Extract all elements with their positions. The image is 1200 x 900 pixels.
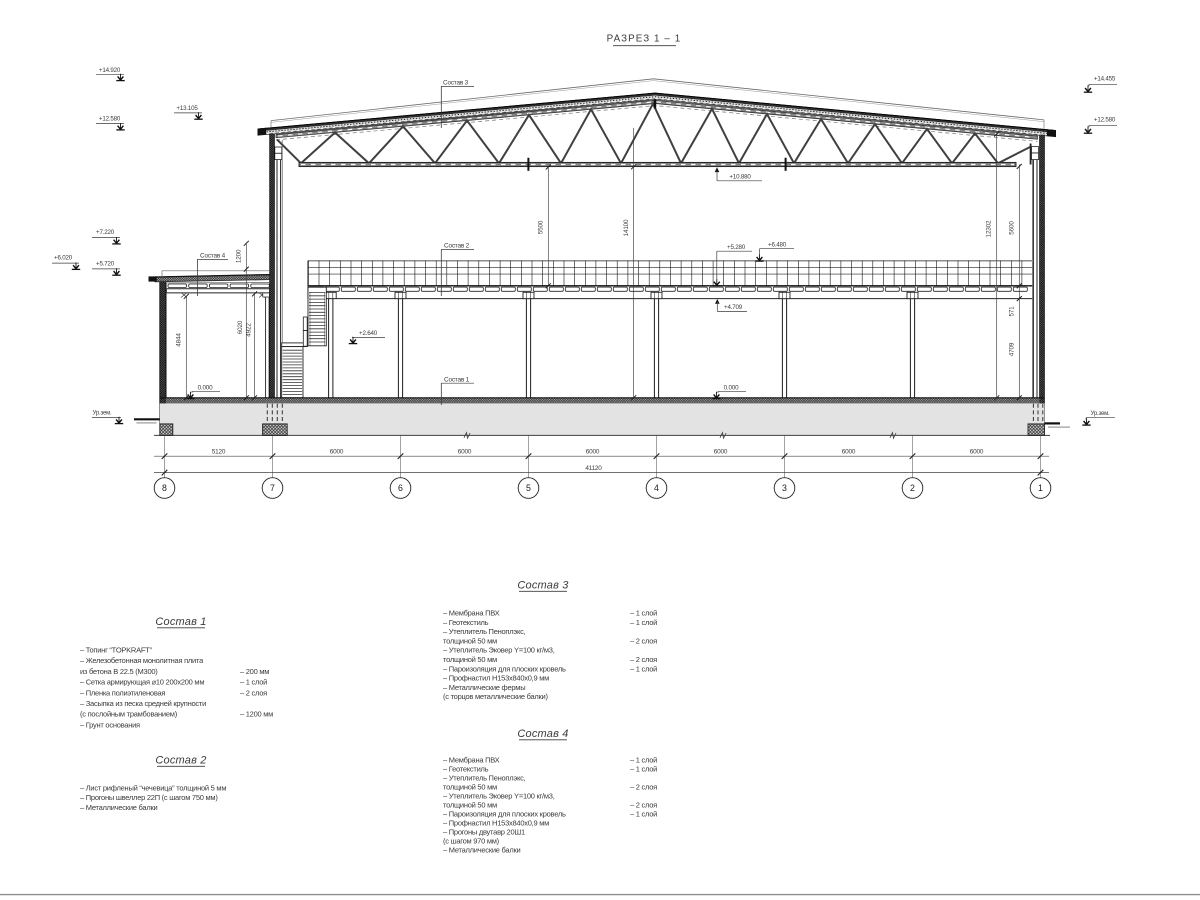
svg-text:1200: 1200 bbox=[235, 249, 242, 263]
svg-text:– Металлические балки: – Металлические балки bbox=[80, 803, 157, 812]
svg-text:– 1 слой: – 1 слой bbox=[240, 678, 267, 687]
svg-text:– 1 слой: – 1 слой bbox=[630, 764, 657, 773]
svg-text:6000: 6000 bbox=[330, 448, 344, 455]
svg-text:+13.105: +13.105 bbox=[176, 105, 198, 112]
svg-text:РАЗРЕЗ 1 – 1: РАЗРЕЗ 1 – 1 bbox=[607, 34, 682, 45]
svg-text:4922: 4922 bbox=[246, 323, 253, 337]
svg-text:+5.280: +5.280 bbox=[727, 244, 746, 251]
svg-text:6020: 6020 bbox=[237, 320, 244, 334]
svg-text:+4.709: +4.709 bbox=[724, 304, 743, 311]
svg-text:Состав 4: Состав 4 bbox=[200, 253, 226, 260]
svg-text:– Грунт основания: – Грунт основания bbox=[80, 720, 140, 729]
svg-text:+6.020: +6.020 bbox=[54, 255, 73, 262]
svg-text:2: 2 bbox=[910, 483, 915, 493]
svg-text:6000: 6000 bbox=[458, 448, 472, 455]
svg-text:8: 8 bbox=[162, 483, 167, 493]
svg-text:из бетона В 22.5 (М300): из бетона В 22.5 (М300) bbox=[80, 667, 158, 676]
svg-text:6000: 6000 bbox=[586, 448, 600, 455]
svg-text:(с шагом 970 мм): (с шагом 970 мм) bbox=[443, 836, 500, 845]
svg-text:+7.220: +7.220 bbox=[96, 229, 115, 236]
svg-text:6000: 6000 bbox=[842, 448, 856, 455]
svg-text:– Профнастил Н153х840х0,9 мм: – Профнастил Н153х840х0,9 мм bbox=[443, 818, 549, 827]
svg-text:12302: 12302 bbox=[986, 220, 993, 237]
svg-text:Состав 4: Состав 4 bbox=[517, 728, 568, 740]
svg-text:5500: 5500 bbox=[538, 220, 545, 234]
svg-text:– Пленка полиэтиленовая: – Пленка полиэтиленовая bbox=[80, 688, 165, 697]
svg-text:Состав 1: Состав 1 bbox=[155, 616, 206, 628]
svg-text:4844: 4844 bbox=[175, 333, 182, 347]
svg-text:6000: 6000 bbox=[714, 448, 728, 455]
svg-text:– Мембрана ПВХ: – Мембрана ПВХ bbox=[443, 609, 500, 618]
svg-text:– 1 слой: – 1 слой bbox=[630, 609, 657, 618]
svg-text:5: 5 bbox=[526, 483, 531, 493]
svg-text:– Прогоны двутавр 20Ш1: – Прогоны двутавр 20Ш1 bbox=[443, 827, 525, 836]
svg-text:– 1200 мм: – 1200 мм bbox=[240, 710, 273, 719]
svg-text:Состав 2: Состав 2 bbox=[444, 243, 470, 250]
svg-text:– Пароизоляция для плоских кро: – Пароизоляция для плоских кровель bbox=[443, 809, 566, 818]
svg-text:– Топинг “TOPKRAFT”: – Топинг “TOPKRAFT” bbox=[80, 646, 152, 655]
svg-text:– Утеплитель Эковер Y=100 кг/м: – Утеплитель Эковер Y=100 кг/м3, bbox=[443, 791, 555, 800]
svg-text:6: 6 bbox=[398, 483, 403, 493]
svg-text:Состав 1: Состав 1 bbox=[444, 376, 470, 383]
svg-text:Состав 3: Состав 3 bbox=[443, 80, 469, 87]
svg-text:+2.640: +2.640 bbox=[359, 330, 378, 337]
svg-text:– Утеплитель Пеноплэкс,: – Утеплитель Пеноплэкс, bbox=[443, 627, 526, 636]
svg-text:– 2 слоя: – 2 слоя bbox=[630, 800, 657, 809]
svg-text:Ур.зем.: Ур.зем. bbox=[93, 411, 112, 417]
svg-text:– Утеплитель Эковер Y=100 кг/м: – Утеплитель Эковер Y=100 кг/м3, bbox=[443, 646, 555, 655]
svg-text:– 2 слоя: – 2 слоя bbox=[630, 636, 657, 645]
svg-text:7: 7 bbox=[270, 483, 275, 493]
svg-text:– Железобетонная монолитная п: – Железобетонная монолитная плита bbox=[80, 656, 204, 665]
svg-text:– Профнастил Н153х840х0,9 мм: – Профнастил Н153х840х0,9 мм bbox=[443, 674, 549, 683]
svg-text:– Пароизоляция для плоских кро: – Пароизоляция для плоских кровель bbox=[443, 664, 566, 673]
svg-text:+5.720: +5.720 bbox=[96, 260, 115, 267]
svg-text:(с послойным трамбованием): (с послойным трамбованием) bbox=[80, 710, 178, 719]
svg-text:0.000: 0.000 bbox=[724, 384, 739, 391]
svg-text:– Металлические фермы: – Металлические фермы bbox=[443, 683, 525, 692]
svg-text:– Засыпка из песка средней кру: – Засыпка из песка средней крупности bbox=[80, 699, 206, 708]
svg-text:1: 1 bbox=[1038, 483, 1043, 493]
svg-text:14100: 14100 bbox=[623, 219, 630, 236]
svg-text:– 2 слоя: – 2 слоя bbox=[630, 655, 657, 664]
svg-text:– Металлические балки: – Металлические балки bbox=[443, 845, 520, 854]
svg-text:+14.920: +14.920 bbox=[99, 67, 121, 74]
svg-text:– 1 слой: – 1 слой bbox=[630, 618, 657, 627]
svg-text:толщиной 50 мм: толщиной 50 мм bbox=[443, 800, 497, 809]
svg-text:4: 4 bbox=[654, 483, 659, 493]
svg-text:0.000: 0.000 bbox=[198, 384, 213, 391]
svg-text:– Мембрана ПВХ: – Мембрана ПВХ bbox=[443, 755, 500, 764]
svg-text:+12.580: +12.580 bbox=[99, 115, 121, 122]
svg-text:– Лист рифленый “чечевица” тол: – Лист рифленый “чечевица” толщиной 5 мм bbox=[80, 783, 226, 792]
svg-text:– Геотекстиль: – Геотекстиль bbox=[443, 618, 489, 627]
svg-text:– 200 мм: – 200 мм bbox=[240, 667, 269, 676]
svg-text:толщиной 50 мм: толщиной 50 мм bbox=[443, 655, 497, 664]
svg-text:571: 571 bbox=[1008, 306, 1015, 317]
svg-text:– 2 слоя: – 2 слоя bbox=[240, 688, 267, 697]
svg-text:6000: 6000 bbox=[970, 448, 984, 455]
svg-text:41120: 41120 bbox=[585, 465, 602, 472]
svg-text:Ур.зем.: Ур.зем. bbox=[1091, 411, 1110, 417]
svg-text:– Прогоны швеллер 22П (с шагом: – Прогоны швеллер 22П (с шагом 750 мм) bbox=[80, 793, 218, 802]
svg-text:+6.480: +6.480 bbox=[768, 242, 787, 249]
svg-text:– 2 слоя: – 2 слоя bbox=[630, 782, 657, 791]
svg-text:3: 3 bbox=[782, 483, 787, 493]
svg-text:Состав 3: Состав 3 bbox=[517, 579, 569, 591]
svg-text:толщиной 50 мм: толщиной 50 мм bbox=[443, 636, 497, 645]
svg-text:– 1 слой: – 1 слой bbox=[630, 809, 657, 818]
svg-text:+12.580: +12.580 bbox=[1094, 116, 1116, 123]
svg-text:4709: 4709 bbox=[1008, 342, 1015, 356]
svg-text:5120: 5120 bbox=[212, 448, 226, 455]
svg-text:– Утеплитель Пеноплэкс,: – Утеплитель Пеноплэкс, bbox=[443, 773, 526, 782]
svg-text:– 1 слой: – 1 слой bbox=[630, 755, 657, 764]
svg-text:– Сетка армирующая ⌀10 200х200: – Сетка армирующая ⌀10 200х200 мм bbox=[80, 678, 204, 687]
svg-text:5600: 5600 bbox=[1008, 221, 1015, 235]
svg-text:Состав 2: Состав 2 bbox=[155, 754, 206, 766]
svg-text:– Геотекстиль: – Геотекстиль bbox=[443, 764, 489, 773]
svg-text:(с торцов металлические балки): (с торцов металлические балки) bbox=[443, 692, 548, 701]
svg-text:+10.880: +10.880 bbox=[729, 174, 751, 181]
svg-text:толщиной 50 мм: толщиной 50 мм bbox=[443, 782, 497, 791]
svg-text:+14.455: +14.455 bbox=[1094, 75, 1116, 82]
svg-text:– 1 слой: – 1 слой bbox=[630, 664, 657, 673]
